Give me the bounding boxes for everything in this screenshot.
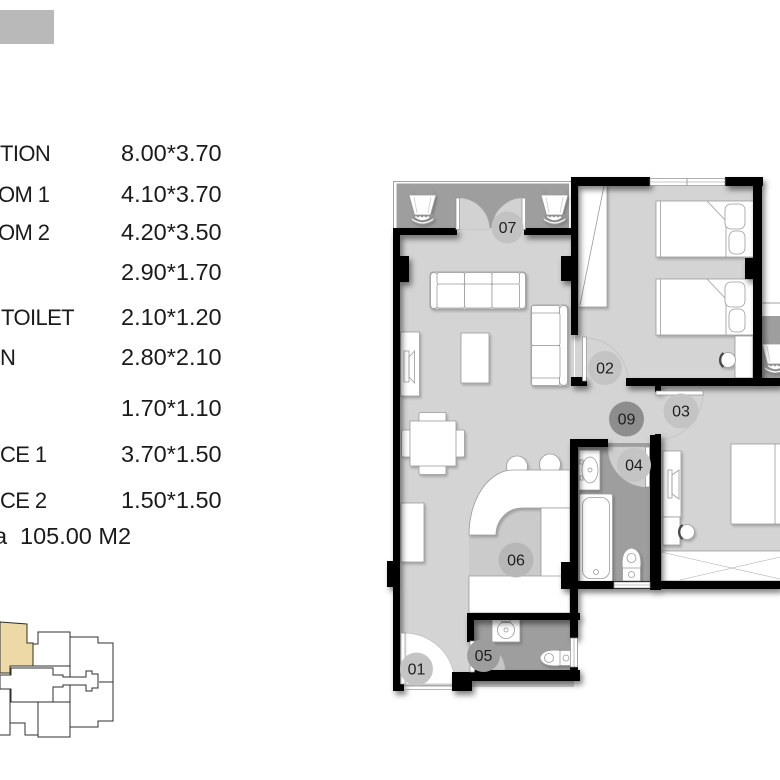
svg-text:06: 06 (507, 552, 525, 569)
svg-text:01: 01 (408, 661, 426, 678)
svg-text:02: 02 (596, 360, 614, 377)
svg-text:09: 09 (618, 411, 636, 428)
svg-text:05: 05 (475, 648, 493, 665)
svg-text:07: 07 (499, 220, 517, 237)
svg-text:03: 03 (672, 403, 690, 420)
svg-text:04: 04 (625, 457, 643, 474)
